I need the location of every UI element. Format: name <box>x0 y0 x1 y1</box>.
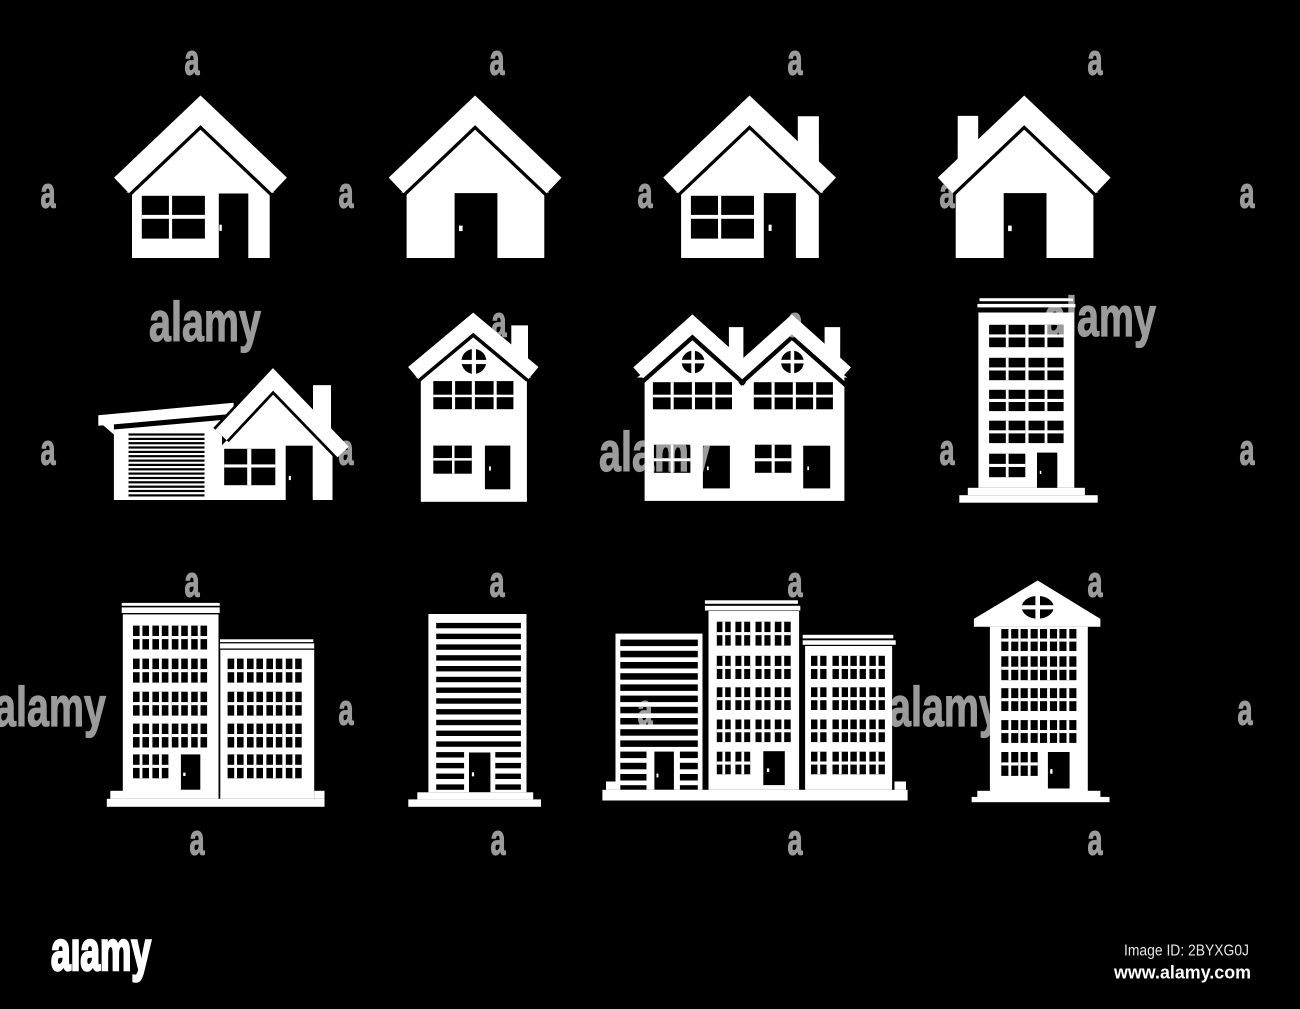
svg-text:Image ID: 2BYXG0J: Image ID: 2BYXG0J <box>1124 943 1249 960</box>
svg-text:a: a <box>339 686 354 735</box>
svg-text:a: a <box>190 816 205 865</box>
svg-text:a: a <box>940 169 955 218</box>
svg-text:a: a <box>490 36 505 85</box>
svg-text:a: a <box>940 426 955 475</box>
svg-text:a: a <box>339 426 354 475</box>
svg-text:a: a <box>185 558 200 607</box>
svg-text:a: a <box>1088 36 1103 85</box>
svg-text:a: a <box>1088 816 1103 865</box>
svg-text:a: a <box>1240 426 1255 475</box>
svg-text:alamy: alamy <box>149 290 261 353</box>
svg-text:www.alamy.com: www.alamy.com <box>1113 963 1251 983</box>
svg-text:a: a <box>492 298 507 347</box>
svg-text:alamy: alamy <box>889 675 1001 738</box>
svg-text:a: a <box>185 36 200 85</box>
svg-text:a: a <box>638 686 653 735</box>
svg-text:a: a <box>1088 558 1103 607</box>
svg-text:alamy: alamy <box>599 420 711 483</box>
svg-text:alamy: alamy <box>0 675 106 738</box>
svg-text:a: a <box>490 558 505 607</box>
svg-text:a: a <box>788 816 803 865</box>
svg-text:a: a <box>788 36 803 85</box>
svg-text:a: a <box>339 169 354 218</box>
svg-text:a: a <box>41 169 56 218</box>
svg-text:aıamy: aıamy <box>51 919 151 982</box>
svg-text:a: a <box>1238 686 1253 735</box>
svg-text:alamy: alamy <box>1044 285 1156 348</box>
svg-text:a: a <box>1240 169 1255 218</box>
svg-text:a: a <box>788 298 803 347</box>
svg-text:a: a <box>788 558 803 607</box>
svg-text:a: a <box>41 426 56 475</box>
svg-text:a: a <box>491 816 506 865</box>
svg-text:a: a <box>638 169 653 218</box>
